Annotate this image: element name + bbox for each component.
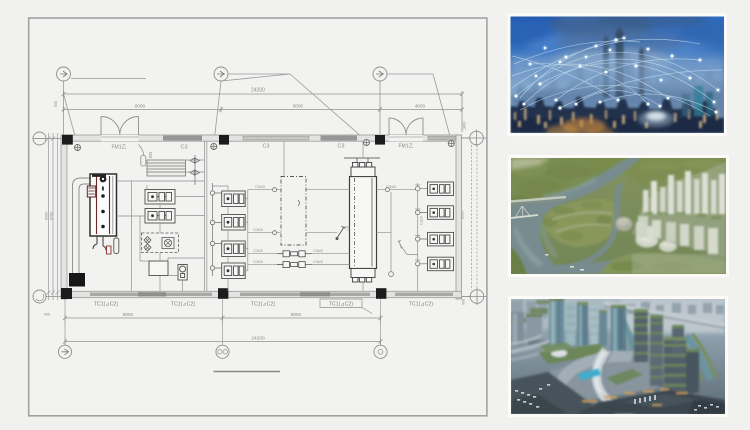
svg-text:M2: M2 (148, 152, 153, 159)
svg-text:FM1乙: FM1乙 (398, 143, 413, 150)
svg-text:900: 900 (462, 299, 466, 305)
svg-text:TC1(⊿C2): TC1(⊿C2) (409, 302, 434, 308)
svg-text:C3≤9: C3≤9 (255, 184, 265, 189)
svg-text:C3: C3 (338, 144, 345, 150)
svg-text:C3≤9: C3≤9 (253, 227, 263, 232)
svg-text:900: 900 (54, 101, 58, 107)
svg-text:24200: 24200 (251, 336, 265, 342)
svg-text:TC1(⊿C2): TC1(⊿C2) (329, 302, 354, 308)
svg-text:TC1(⊿C2): TC1(⊿C2) (251, 302, 276, 308)
svg-text:24200: 24200 (251, 88, 265, 94)
svg-text:900: 900 (44, 313, 50, 317)
svg-text:C3≤9: C3≤9 (313, 248, 323, 253)
svg-text:8000: 8000 (291, 312, 302, 317)
svg-text:C3: C3 (181, 145, 188, 151)
svg-text:8700: 8700 (50, 212, 54, 220)
svg-text:4600: 4600 (415, 104, 426, 109)
svg-text:8000: 8000 (135, 104, 146, 109)
svg-text:C3: C3 (263, 144, 270, 150)
svg-text:8000: 8000 (293, 104, 304, 109)
svg-text:TC1(⊿C2): TC1(⊿C2) (171, 302, 196, 308)
svg-text:C3≤9: C3≤9 (420, 216, 424, 225)
svg-text:C3≤9: C3≤9 (253, 259, 263, 264)
svg-text:1800: 1800 (463, 122, 467, 130)
svg-text:FM1乙: FM1乙 (111, 144, 126, 151)
svg-text:C3≤9: C3≤9 (253, 248, 263, 253)
svg-text:C3≤9: C3≤9 (313, 259, 323, 264)
svg-text:8000: 8000 (123, 312, 134, 317)
svg-text:TC1(⊿C2): TC1(⊿C2) (94, 302, 119, 308)
svg-text:8000: 8000 (45, 212, 49, 220)
